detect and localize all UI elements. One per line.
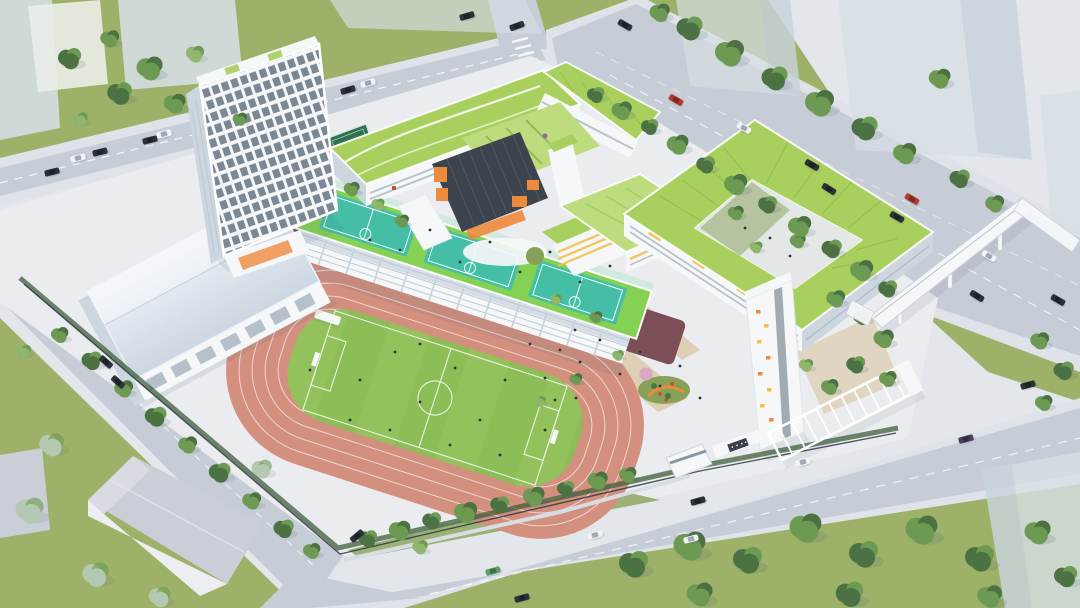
- rendering-canvas: [0, 0, 1080, 608]
- campus-rendering: [0, 0, 1080, 608]
- pink-blossom-tree: [640, 368, 653, 381]
